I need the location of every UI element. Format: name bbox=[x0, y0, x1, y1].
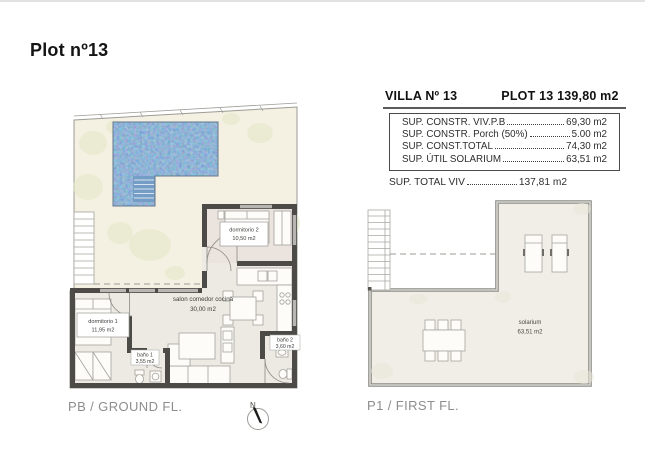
svg-text:baño 1: baño 1 bbox=[137, 353, 153, 359]
surface-row: SUP. ÚTIL SOLARIUM 63,51 m2 bbox=[402, 154, 607, 166]
svg-text:dormitorio 1: dormitorio 1 bbox=[88, 319, 118, 325]
room-label-dorm2: dormitorio 2 10,50 m2 bbox=[220, 222, 268, 246]
lounger bbox=[523, 235, 544, 272]
tv-unit bbox=[221, 327, 234, 363]
surface-row: SUP. CONST.TOTAL 74,30 m2 bbox=[402, 141, 607, 153]
floor-plan-sheet: Plot nº13 VILLA Nº 13 PLOT 13 139,80 m2 … bbox=[0, 0, 645, 451]
compass-needle-icon bbox=[253, 407, 263, 424]
surface-table: SUP. CONSTR. VIV.P.B 69,30 m2 SUP. CONST… bbox=[389, 113, 620, 171]
solarium-stairs bbox=[368, 210, 390, 291]
surface-row-value: 63,51 m2 bbox=[566, 154, 607, 166]
svg-text:30,00 m2: 30,00 m2 bbox=[190, 306, 216, 313]
svg-text:11,95 m2: 11,95 m2 bbox=[92, 328, 115, 334]
surface-row-label: SUP. CONST.TOTAL bbox=[402, 141, 493, 153]
surface-row: SUP. CONSTR. Porch (50%) 5.00 m2 bbox=[402, 129, 607, 141]
svg-text:3,60 m2: 3,60 m2 bbox=[276, 344, 295, 350]
svg-text:10,50 m2: 10,50 m2 bbox=[232, 236, 255, 242]
pool-steps bbox=[133, 176, 155, 202]
first-floor-plan: solarium 63,51 m2 bbox=[358, 193, 603, 393]
exterior-stairs bbox=[74, 212, 94, 284]
room-label-dorm1: dormitorio 1 11,95 m2 bbox=[77, 313, 129, 337]
svg-text:63,51 m2: 63,51 m2 bbox=[517, 330, 543, 336]
surface-row-label: SUP. ÚTIL SOLARIUM bbox=[402, 154, 501, 166]
total-label: SUP. TOTAL VIV bbox=[389, 177, 465, 188]
room-label-bath2: baño 2 3,60 m2 bbox=[270, 335, 300, 350]
villa-number-label: VILLA Nº 13 bbox=[385, 89, 457, 103]
dotted-leader bbox=[530, 136, 570, 137]
page-title: Plot nº13 bbox=[30, 40, 108, 61]
outdoor-dining-set bbox=[423, 320, 465, 361]
svg-text:baño 2: baño 2 bbox=[277, 338, 293, 344]
page-top-rule bbox=[0, 0, 645, 2]
surface-row-value: 69,30 m2 bbox=[566, 117, 607, 129]
svg-text:solarium: solarium bbox=[519, 320, 542, 326]
villa-info-table: VILLA Nº 13 PLOT 13 139,80 m2 SUP. CONST… bbox=[383, 89, 626, 188]
solarium-slab bbox=[370, 202, 594, 385]
plot-area-label: PLOT 13 139,80 m2 bbox=[501, 89, 618, 103]
wardrobe-dorm1 bbox=[75, 352, 111, 380]
dotted-leader bbox=[507, 124, 564, 125]
surface-row-label: SUP. CONSTR. Porch (50%) bbox=[402, 129, 528, 141]
first-floor-caption: P1 / FIRST FL. bbox=[367, 398, 459, 413]
header-rule bbox=[383, 107, 626, 109]
dotted-leader bbox=[467, 184, 517, 185]
ground-floor-plan: dormitorio 1 11,95 m2 dormitorio 2 10,50… bbox=[55, 95, 310, 395]
ground-floor-caption: PB / GROUND FL. bbox=[68, 399, 182, 414]
wardrobe-dorm2 bbox=[274, 211, 291, 245]
lounger bbox=[550, 235, 569, 272]
svg-text:salon comedor cocina: salon comedor cocina bbox=[173, 296, 234, 303]
svg-text:dormitorio 2: dormitorio 2 bbox=[229, 228, 259, 234]
total-surface-row: SUP. TOTAL VIV 137,81 m2 bbox=[389, 177, 567, 188]
surface-row-value: 74,30 m2 bbox=[566, 141, 607, 153]
surface-row-value: 5.00 m2 bbox=[572, 129, 607, 141]
villa-info-header: VILLA Nº 13 PLOT 13 139,80 m2 bbox=[383, 89, 626, 107]
surface-row: SUP. CONSTR. VIV.P.B 69,30 m2 bbox=[402, 117, 607, 129]
room-label-bath1: baño 1 3,55 m2 bbox=[131, 350, 159, 365]
dotted-leader bbox=[495, 148, 564, 149]
total-value: 137,81 m2 bbox=[519, 177, 567, 188]
dotted-leader bbox=[503, 161, 564, 162]
surface-row-label: SUP. CONSTR. VIV.P.B bbox=[402, 117, 505, 129]
svg-text:3,55 m2: 3,55 m2 bbox=[136, 359, 155, 365]
coffee-table bbox=[179, 333, 215, 359]
north-compass: N bbox=[240, 397, 278, 439]
